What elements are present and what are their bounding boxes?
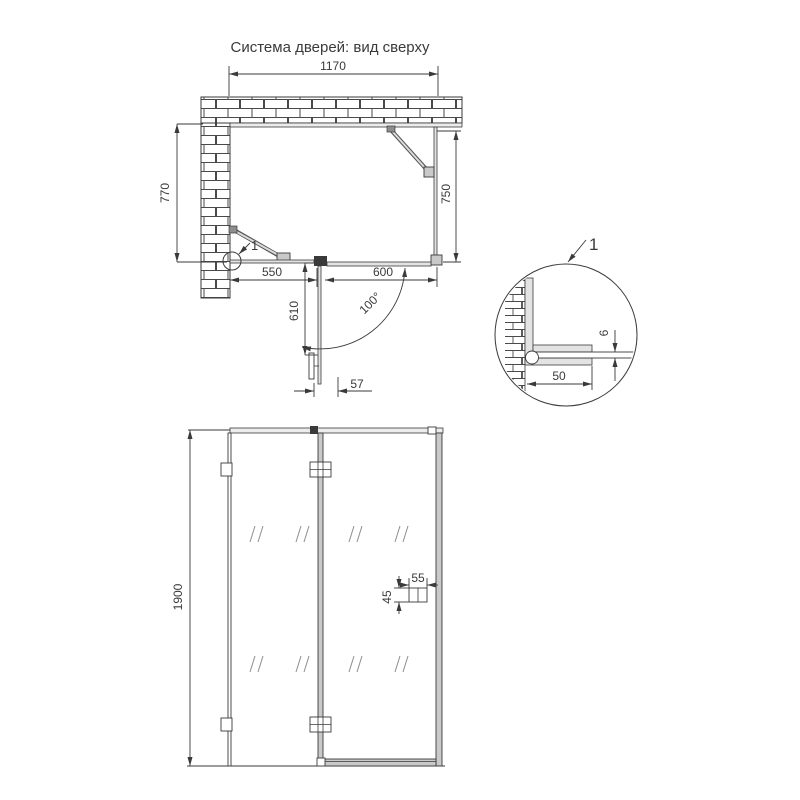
- dim-label-6: 6: [597, 329, 611, 336]
- dim-handle-offset: 57: [294, 377, 372, 397]
- drawing-canvas: Система дверей: вид сверху 1170 770: [0, 0, 800, 800]
- glass-hatch: [349, 656, 362, 672]
- corner-connector: [431, 255, 442, 265]
- dim-right-side: 750: [437, 131, 461, 262]
- hinge-center-bottom: [310, 717, 331, 732]
- leader-line: [568, 240, 586, 262]
- detail-wall-brick: [505, 262, 525, 410]
- glass-hatch: [349, 526, 362, 542]
- glass-panel-edge: [533, 352, 635, 358]
- glass-hatch: [296, 656, 309, 672]
- detail-view: 1 6 50: [495, 235, 637, 410]
- support-bar-inner: [392, 131, 426, 169]
- glass-hatch: [250, 526, 263, 542]
- left-glass-edge: [228, 433, 231, 766]
- dim-label-750: 750: [439, 184, 453, 204]
- threshold-end-cap: [317, 758, 325, 766]
- dim-label-600: 600: [373, 265, 393, 279]
- detail-marker-label: 1: [251, 238, 258, 253]
- dim-label-45: 45: [380, 590, 394, 604]
- threshold-bar: [322, 759, 436, 766]
- dim-label-1170: 1170: [320, 59, 346, 73]
- elevation-view: 1900: [171, 426, 445, 766]
- top-rail: [230, 428, 443, 433]
- top-center-bracket: [310, 426, 318, 434]
- dim-label-50: 50: [552, 369, 566, 383]
- profile-bottom-flange: [533, 358, 592, 365]
- dim-door-open: 610: [287, 263, 318, 355]
- dim-profile-width: 50: [527, 366, 592, 390]
- hinge-left-top: [221, 463, 232, 476]
- fixed-panel-glass-plan: [230, 260, 314, 263]
- top-right-bracket: [428, 427, 436, 434]
- left-wall-brick: [201, 123, 230, 298]
- dim-total-width: 1170: [229, 59, 438, 96]
- support-bar-left: [229, 226, 290, 262]
- wall-anchor-block: [229, 226, 237, 233]
- threshold-rail: [317, 758, 436, 766]
- support-bar-right: [387, 126, 434, 177]
- glass-hatch: [296, 526, 309, 542]
- dim-label-57: 57: [350, 377, 364, 391]
- dim-label-770: 770: [158, 183, 172, 203]
- wall-anchor-block: [387, 126, 395, 132]
- dim-label-610: 610: [287, 301, 301, 321]
- glass-hatch: [395, 526, 408, 542]
- right-glass-panel-plan: [434, 127, 437, 255]
- door-handle-plan: [309, 353, 314, 379]
- door-hinge-plan: [314, 256, 327, 266]
- top-wall-brick: [201, 97, 462, 123]
- profile-top-flange: [533, 345, 592, 352]
- technical-drawing-page: Система дверей: вид сверху 1170 770: [0, 0, 800, 800]
- dim-handle-width: 55: [398, 571, 438, 588]
- center-profile: [318, 433, 323, 763]
- door-handle-elevation: [409, 588, 427, 602]
- plan-view: 1170 770 750: [158, 59, 462, 397]
- angle-label: 100°: [356, 289, 384, 317]
- dim-handle-height: 45: [380, 576, 409, 614]
- top-wall-profile: [230, 123, 462, 127]
- glass-hatch: [250, 656, 263, 672]
- dim-door-width: 600: [325, 265, 437, 287]
- hinge-left-bottom: [221, 718, 232, 731]
- detail-ref-label: 1: [589, 235, 598, 254]
- dim-label-550: 550: [262, 265, 282, 279]
- glass-hatch: [395, 656, 408, 672]
- page-title: Система дверей: вид сверху: [231, 39, 430, 56]
- dim-label-55: 55: [411, 571, 425, 585]
- right-wall-profile: [436, 433, 442, 766]
- dim-height: 1900: [171, 430, 232, 766]
- leader-line: [239, 243, 250, 254]
- dim-fixed-panel: 550: [230, 265, 317, 287]
- hinge-center-top: [310, 462, 331, 477]
- dim-label-1900: 1900: [171, 583, 185, 610]
- glass-seal-bulb: [526, 351, 539, 364]
- glass-connector-block: [424, 167, 434, 177]
